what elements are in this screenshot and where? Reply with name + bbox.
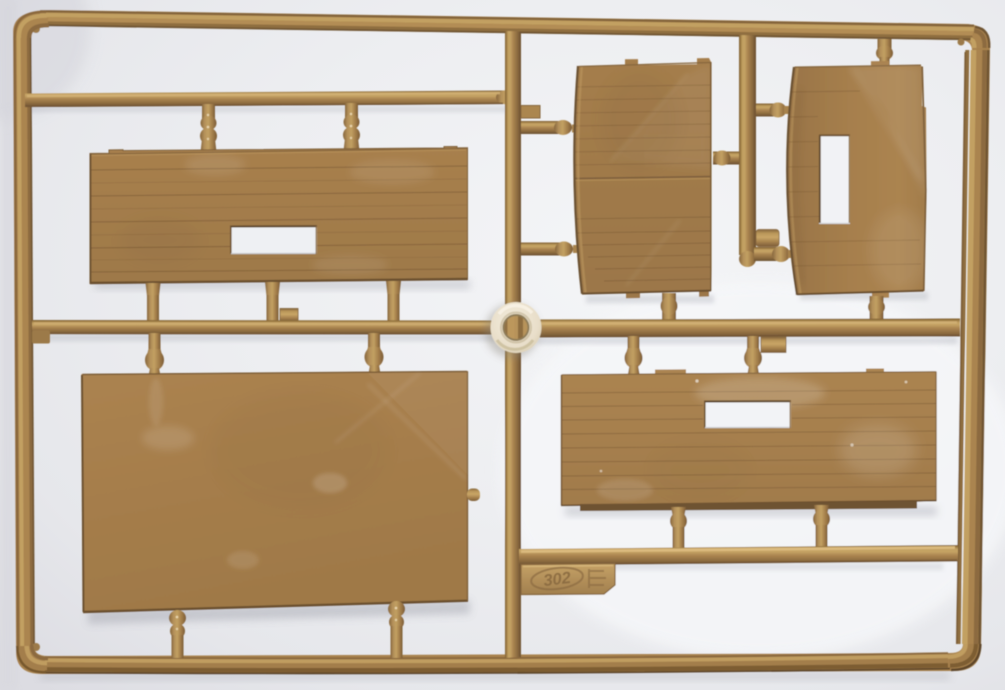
svg-text:302: 302 bbox=[542, 569, 572, 590]
